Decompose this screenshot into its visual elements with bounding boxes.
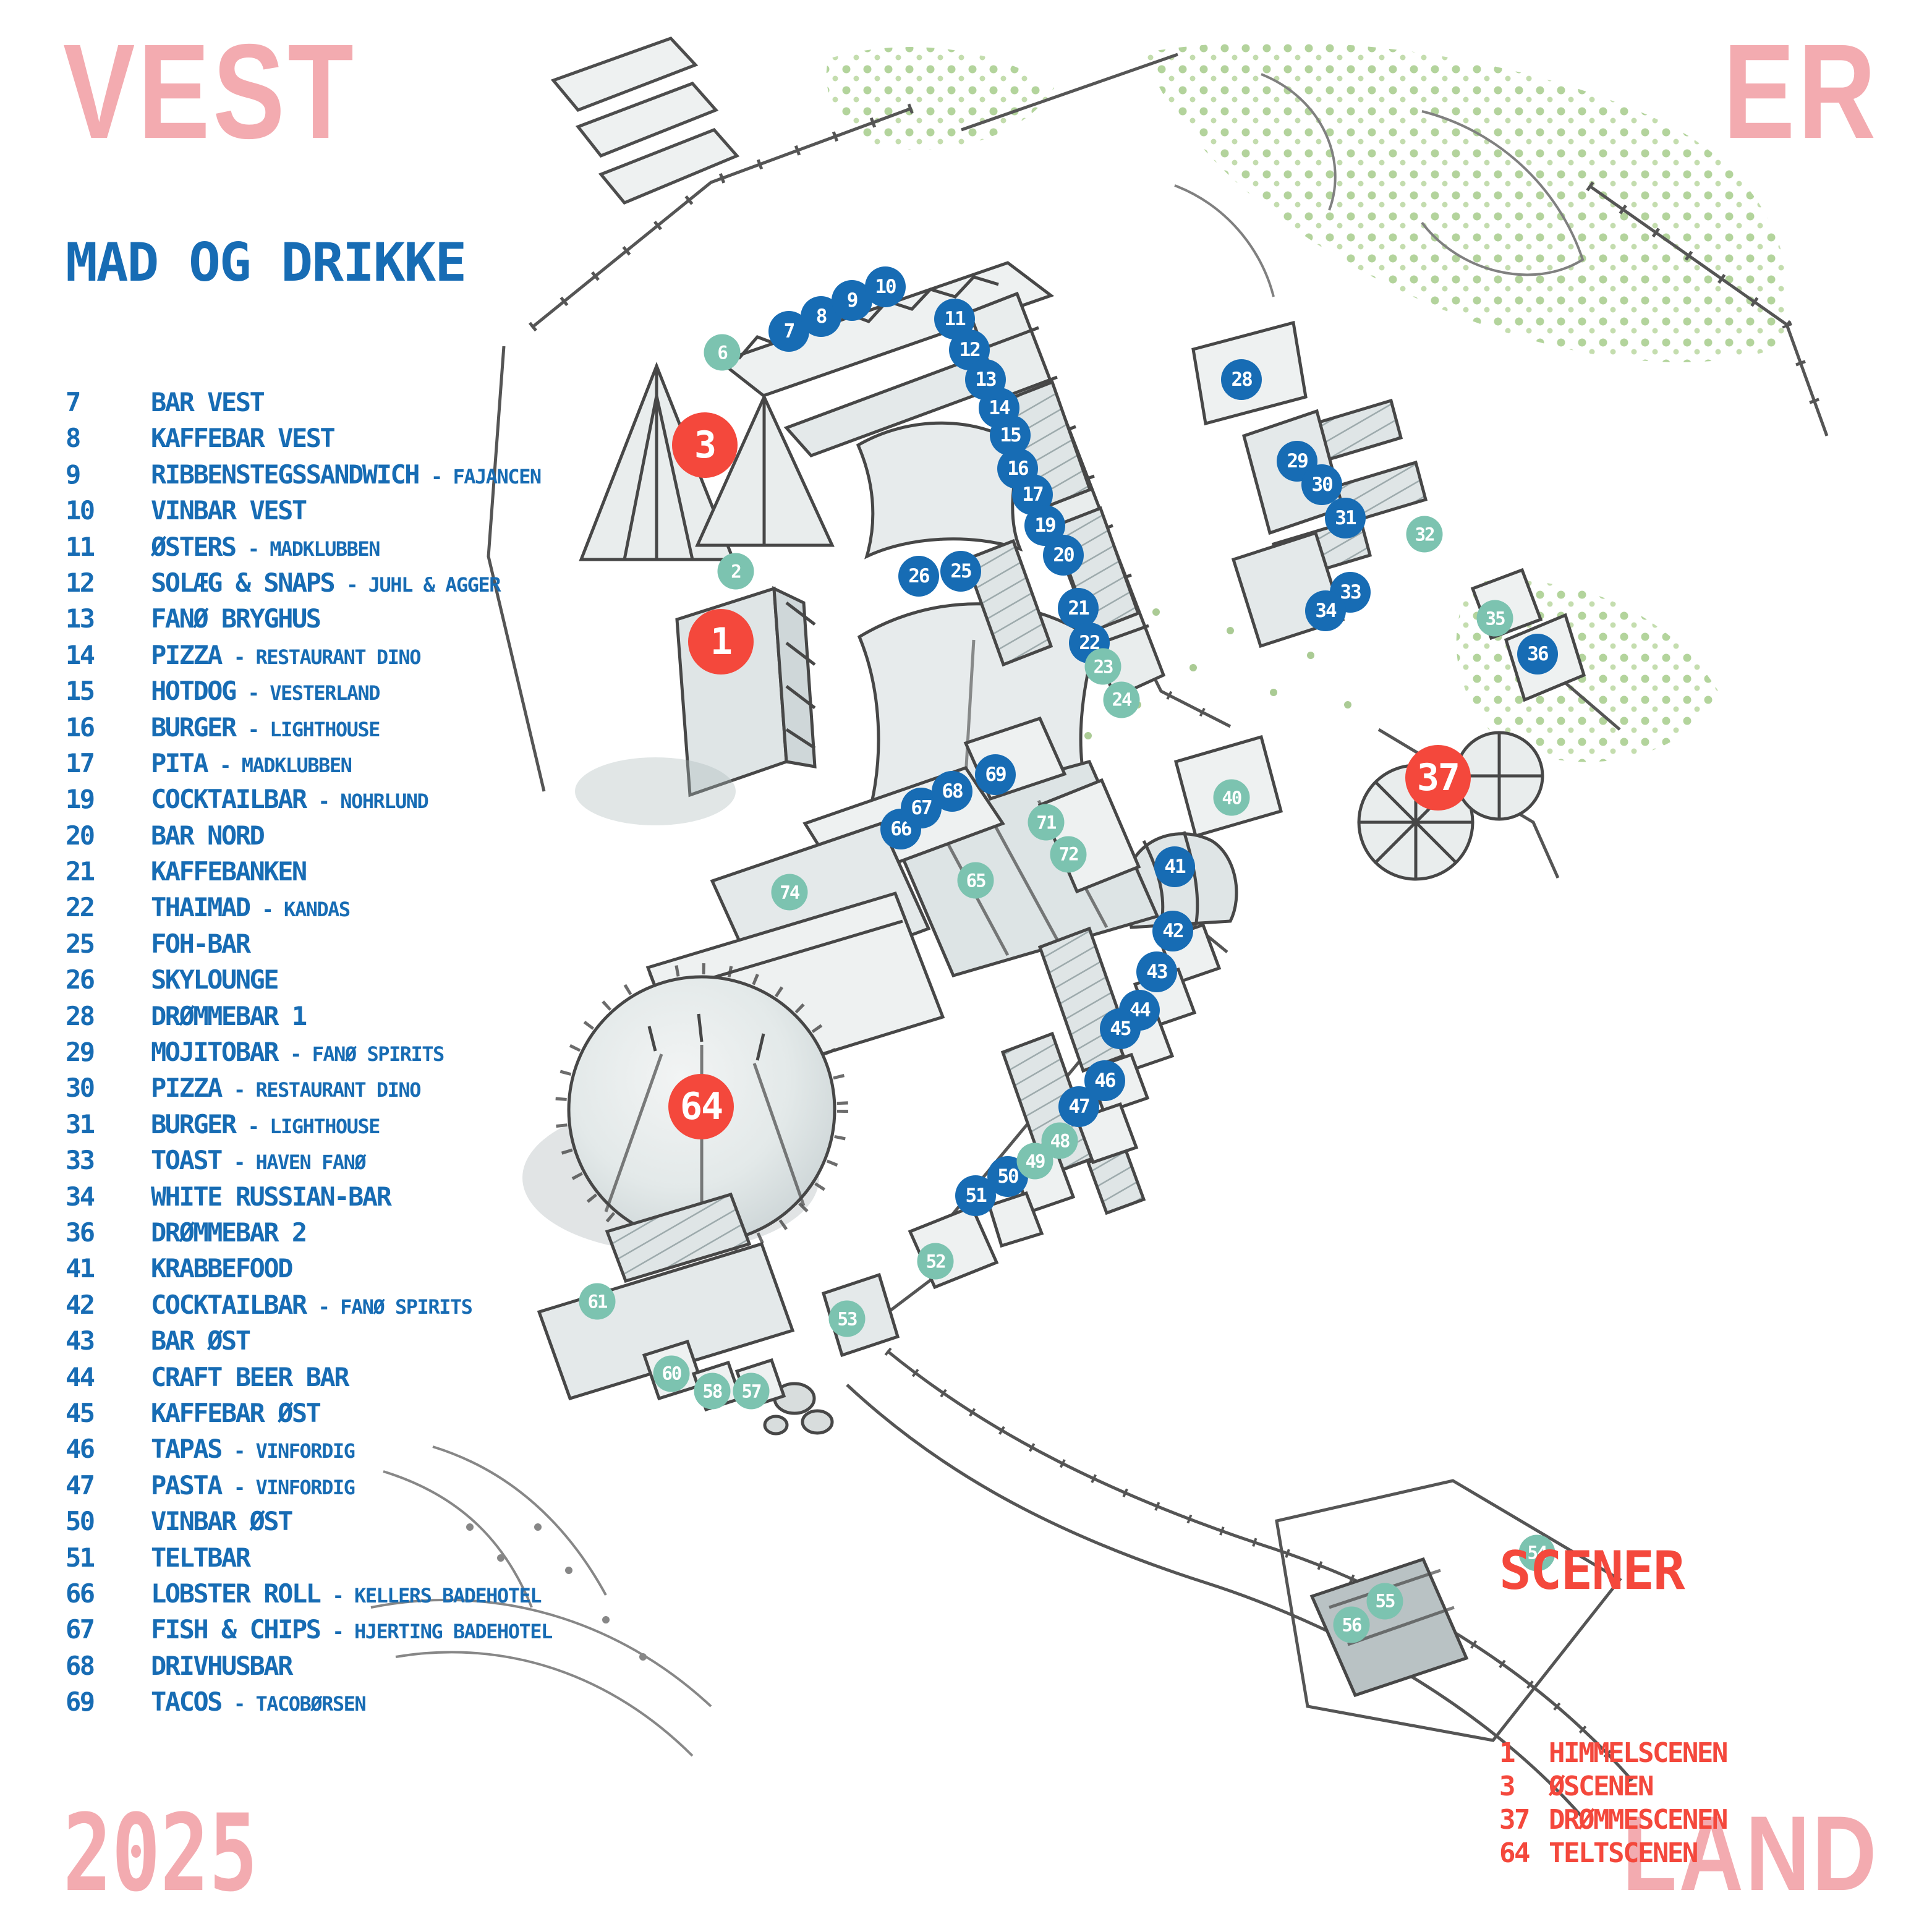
item-number: 44 bbox=[66, 1362, 151, 1392]
item-label: TELTBAR bbox=[151, 1543, 250, 1573]
item-number: 28 bbox=[66, 1001, 151, 1031]
item-number: 21 bbox=[66, 856, 151, 887]
item-number: 66 bbox=[66, 1578, 151, 1609]
item-label: COCKTAILBAR bbox=[151, 1290, 306, 1320]
item-vendor: - MADKLUBBEN bbox=[248, 537, 380, 561]
food-item-20: 20BAR NORD bbox=[66, 820, 1932, 856]
item-label: KRABBEFOOD bbox=[151, 1253, 292, 1283]
food-item-33: 33TOAST- HAVEN FANØ bbox=[66, 1145, 1932, 1181]
food-item-68: 68DRIVHUSBAR bbox=[66, 1651, 1932, 1687]
item-number: 10 bbox=[66, 495, 151, 526]
stage-item-1: 1HIMMELSCENEN bbox=[1499, 1737, 1932, 1771]
item-label: VINBAR VEST bbox=[151, 495, 306, 526]
item-vendor: - RESTAURANT DINO bbox=[234, 645, 420, 669]
stage-item-3: 3ØSCENEN bbox=[1499, 1771, 1932, 1804]
food-item-22: 22THAIMAD- KANDAS bbox=[66, 892, 1932, 928]
item-label: DRØMMEBAR 2 bbox=[151, 1217, 306, 1248]
item-number: 9 bbox=[66, 459, 151, 490]
food-item-31: 31BURGER- LIGHTHOUSE bbox=[66, 1109, 1932, 1145]
item-vendor: - VESTERLAND bbox=[248, 681, 380, 705]
item-number: 37 bbox=[1499, 1804, 1549, 1836]
item-number: 16 bbox=[66, 712, 151, 743]
item-number: 25 bbox=[66, 929, 151, 959]
item-label: WHITE RUSSIAN-BAR bbox=[151, 1181, 390, 1212]
food-item-14: 14PIZZA- RESTAURANT DINO bbox=[66, 640, 1932, 676]
item-vendor: - RESTAURANT DINO bbox=[234, 1078, 420, 1102]
item-number: 42 bbox=[66, 1290, 151, 1320]
item-number: 20 bbox=[66, 820, 151, 851]
item-label: BAR VEST bbox=[151, 387, 263, 417]
stages-list: 1HIMMELSCENEN3ØSCENEN37DRØMMESCENEN64TEL… bbox=[1499, 1737, 1932, 1871]
stages-title: SCENER bbox=[1499, 1544, 1932, 1598]
item-number: 43 bbox=[66, 1326, 151, 1356]
item-vendor: - HAVEN FANØ bbox=[234, 1151, 365, 1174]
festival-map-poster: VEST ER 2025 LAND MAD OG DRIKKE 7BAR VES… bbox=[0, 0, 1932, 1932]
food-item-7: 7BAR VEST bbox=[66, 387, 1932, 423]
item-number: 12 bbox=[66, 568, 151, 598]
item-label: PIZZA bbox=[151, 1073, 221, 1103]
item-number: 1 bbox=[1499, 1737, 1549, 1769]
item-label: PIZZA bbox=[151, 640, 221, 670]
food-drinks-title: MAD OG DRIKKE bbox=[66, 236, 1932, 289]
item-number: 17 bbox=[66, 748, 151, 778]
food-item-29: 29MOJITOBAR- FANØ SPIRITS bbox=[66, 1037, 1932, 1073]
item-number: 51 bbox=[66, 1543, 151, 1573]
item-label: BURGER bbox=[151, 712, 236, 743]
item-label: FOH-BAR bbox=[151, 929, 250, 959]
item-vendor: - KANDAS bbox=[262, 898, 350, 921]
item-number: 34 bbox=[66, 1181, 151, 1212]
food-item-16: 16BURGER- LIGHTHOUSE bbox=[66, 712, 1932, 748]
food-item-25: 25FOH-BAR bbox=[66, 929, 1932, 964]
food-item-19: 19COCKTAILBAR- NOHRLUND bbox=[66, 784, 1932, 820]
food-item-45: 45KAFFEBAR ØST bbox=[66, 1398, 1932, 1434]
item-label: FANØ BRYGHUS bbox=[151, 603, 320, 634]
item-number: 7 bbox=[66, 387, 151, 417]
item-label: DRIVHUSBAR bbox=[151, 1651, 292, 1681]
food-item-44: 44CRAFT BEER BAR bbox=[66, 1362, 1932, 1398]
food-item-46: 46TAPAS- VINFORDIG bbox=[66, 1434, 1932, 1470]
item-vendor: - HJERTING BADEHOTEL bbox=[332, 1620, 551, 1643]
item-label: RIBBENSTEGSSANDWICH bbox=[151, 459, 419, 490]
item-vendor: - FANØ SPIRITS bbox=[290, 1042, 444, 1066]
item-label: THAIMAD bbox=[151, 892, 250, 922]
item-label: TAPAS bbox=[151, 1434, 221, 1464]
item-label: KAFFEBAR ØST bbox=[151, 1398, 320, 1428]
item-label: ØSTERS bbox=[151, 532, 236, 562]
food-item-36: 36DRØMMEBAR 2 bbox=[66, 1217, 1932, 1253]
item-label: PITA bbox=[151, 748, 207, 778]
item-number: 22 bbox=[66, 892, 151, 922]
item-number: 14 bbox=[66, 640, 151, 670]
item-label: ØSCENEN bbox=[1549, 1771, 1653, 1802]
food-drinks-list: 7BAR VEST8KAFFEBAR VEST9RIBBENSTEGSSANDW… bbox=[66, 387, 1932, 1722]
item-label: LOBSTER ROLL bbox=[151, 1578, 320, 1609]
item-number: 41 bbox=[66, 1253, 151, 1283]
item-number: 19 bbox=[66, 784, 151, 814]
food-item-11: 11ØSTERS- MADKLUBBEN bbox=[66, 532, 1932, 568]
item-vendor: - KELLERS BADEHOTEL bbox=[332, 1584, 541, 1607]
item-number: 13 bbox=[66, 603, 151, 634]
food-item-13: 13FANØ BRYGHUS bbox=[66, 603, 1932, 639]
item-number: 30 bbox=[66, 1073, 151, 1103]
food-item-30: 30PIZZA- RESTAURANT DINO bbox=[66, 1073, 1932, 1109]
item-vendor: - VINFORDIG bbox=[234, 1439, 354, 1463]
food-item-26: 26SKYLOUNGE bbox=[66, 964, 1932, 1000]
item-number: 11 bbox=[66, 532, 151, 562]
food-item-34: 34WHITE RUSSIAN-BAR bbox=[66, 1181, 1932, 1217]
item-vendor: - NOHRLUND bbox=[318, 789, 428, 813]
item-number: 67 bbox=[66, 1614, 151, 1645]
item-label: TOAST bbox=[151, 1145, 221, 1175]
item-label: SKYLOUNGE bbox=[151, 964, 278, 995]
item-number: 3 bbox=[1499, 1771, 1549, 1802]
food-item-8: 8KAFFEBAR VEST bbox=[66, 423, 1932, 459]
item-label: VINBAR ØST bbox=[151, 1506, 292, 1536]
food-item-42: 42COCKTAILBAR- FANØ SPIRITS bbox=[66, 1290, 1932, 1326]
item-number: 46 bbox=[66, 1434, 151, 1464]
item-number: 33 bbox=[66, 1145, 151, 1175]
food-item-15: 15HOTDOG- VESTERLAND bbox=[66, 676, 1932, 712]
item-label: KAFFEBANKEN bbox=[151, 856, 306, 887]
item-label: FISH & CHIPS bbox=[151, 1614, 320, 1645]
stage-item-37: 37DRØMMESCENEN bbox=[1499, 1804, 1932, 1837]
item-number: 31 bbox=[66, 1109, 151, 1139]
item-label: COCKTAILBAR bbox=[151, 784, 306, 814]
item-number: 8 bbox=[66, 423, 151, 453]
food-item-41: 41KRABBEFOOD bbox=[66, 1253, 1932, 1289]
item-label: BURGER bbox=[151, 1109, 236, 1139]
food-item-43: 43BAR ØST bbox=[66, 1326, 1932, 1361]
food-item-21: 21KAFFEBANKEN bbox=[66, 856, 1932, 892]
map-marker-6: 6 bbox=[704, 334, 741, 371]
item-vendor: - MADKLUBBEN bbox=[219, 754, 351, 777]
item-label: TELTSCENEN bbox=[1549, 1837, 1697, 1869]
item-number: 64 bbox=[1499, 1837, 1549, 1869]
item-vendor: - FANØ SPIRITS bbox=[318, 1295, 472, 1319]
item-vendor: - LIGHTHOUSE bbox=[248, 718, 380, 741]
item-label: DRØMMESCENEN bbox=[1549, 1804, 1727, 1836]
item-number: 45 bbox=[66, 1398, 151, 1428]
food-item-17: 17PITA- MADKLUBBEN bbox=[66, 748, 1932, 784]
item-label: BAR ØST bbox=[151, 1326, 250, 1356]
item-vendor: - VINFORDIG bbox=[234, 1476, 354, 1499]
item-label: HOTDOG bbox=[151, 676, 236, 706]
item-label: KAFFEBAR VEST bbox=[151, 423, 334, 453]
food-item-12: 12SOLÆG & SNAPS- JUHL & AGGER bbox=[66, 568, 1932, 603]
item-label: PASTA bbox=[151, 1470, 221, 1500]
item-label: MOJITOBAR bbox=[151, 1037, 278, 1067]
item-label: HIMMELSCENEN bbox=[1549, 1737, 1727, 1769]
item-number: 47 bbox=[66, 1470, 151, 1500]
stage-item-64: 64TELTSCENEN bbox=[1499, 1837, 1932, 1871]
item-number: 69 bbox=[66, 1687, 151, 1717]
food-item-28: 28DRØMMEBAR 1 bbox=[66, 1001, 1932, 1037]
item-number: 36 bbox=[66, 1217, 151, 1248]
item-label: CRAFT BEER BAR bbox=[151, 1362, 348, 1392]
item-label: BAR NORD bbox=[151, 820, 263, 851]
item-number: 50 bbox=[66, 1506, 151, 1536]
food-item-67: 67FISH & CHIPS- HJERTING BADEHOTEL bbox=[66, 1614, 1932, 1650]
item-label: SOLÆG & SNAPS bbox=[151, 568, 334, 598]
item-vendor: - TACOBØRSEN bbox=[234, 1692, 365, 1716]
food-item-10: 10VINBAR VEST bbox=[66, 495, 1932, 531]
item-number: 26 bbox=[66, 964, 151, 995]
food-item-47: 47PASTA- VINFORDIG bbox=[66, 1470, 1932, 1506]
item-label: TACOS bbox=[151, 1687, 221, 1717]
item-vendor: - JUHL & AGGER bbox=[346, 573, 500, 597]
food-item-9: 9RIBBENSTEGSSANDWICH- FAJANCEN bbox=[66, 459, 1932, 495]
item-vendor: - FAJANCEN bbox=[431, 465, 541, 488]
item-number: 68 bbox=[66, 1651, 151, 1681]
item-number: 29 bbox=[66, 1037, 151, 1067]
item-label: DRØMMEBAR 1 bbox=[151, 1001, 306, 1031]
food-item-50: 50VINBAR ØST bbox=[66, 1506, 1932, 1542]
item-vendor: - LIGHTHOUSE bbox=[248, 1115, 380, 1138]
food-item-69: 69TACOS- TACOBØRSEN bbox=[66, 1687, 1932, 1722]
item-number: 15 bbox=[66, 676, 151, 706]
